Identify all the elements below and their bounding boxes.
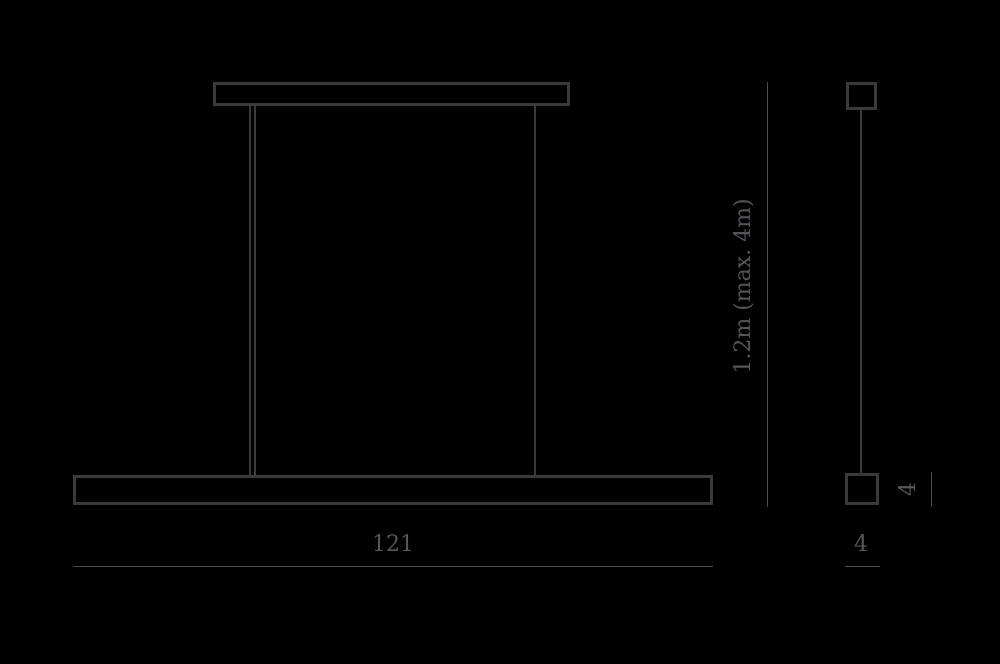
suspension-cable-left-outer xyxy=(249,106,251,475)
height-dimension-label: 1.2m (max. 4m) xyxy=(733,198,755,373)
height-dimension-line xyxy=(767,82,768,507)
ceiling-canopy-front xyxy=(213,82,570,106)
suspension-cable-side xyxy=(860,110,862,473)
bar-height-dimension-label: 4 xyxy=(898,482,920,496)
light-bar-side xyxy=(845,473,879,505)
length-dimension-label: 121 xyxy=(372,534,414,556)
length-dimension-line xyxy=(73,566,713,567)
bar-height-dimension-line xyxy=(931,472,932,507)
depth-dimension-line xyxy=(845,566,880,567)
dimension-drawing: 1.2m (max. 4m) 121 4 4 xyxy=(0,0,1000,664)
suspension-cable-left-inner xyxy=(254,106,256,475)
depth-dimension-label: 4 xyxy=(854,534,868,556)
suspension-cable-right xyxy=(534,106,536,475)
ceiling-canopy-side xyxy=(846,82,877,110)
light-bar-front xyxy=(73,475,713,505)
